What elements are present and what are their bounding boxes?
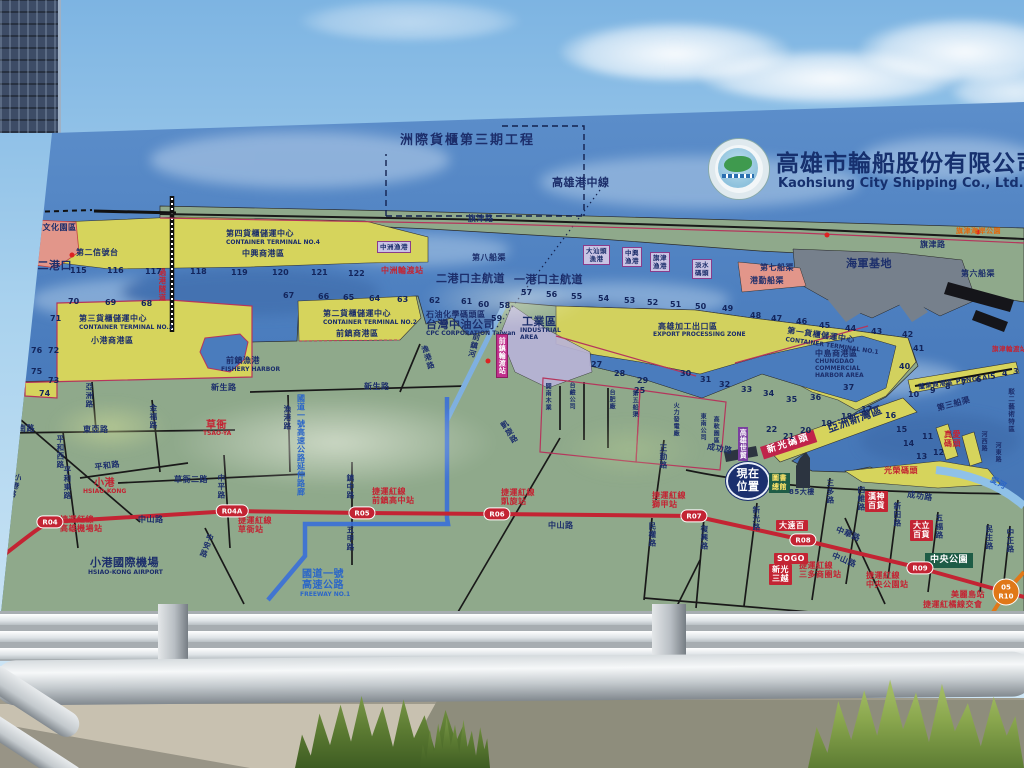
map-label: 淡水 碼頭: [692, 259, 712, 279]
map-label: 高雄港中線: [552, 177, 610, 190]
map-label: 7: [961, 378, 967, 387]
map-label: 東南公司: [699, 413, 706, 441]
map-label: 捷運紅線 前鎮高中站: [372, 487, 415, 506]
station-R04A: R04A: [216, 504, 249, 517]
map-label: 台肥廠: [608, 389, 615, 410]
map-label: 亞洲新灣區: [826, 404, 884, 436]
map-label: 漁港路: [282, 405, 291, 431]
map-label: 前鎮漁港: [226, 356, 260, 365]
map-label: 44: [845, 324, 856, 333]
map-label: 32: [719, 380, 730, 389]
map-label: 三多路: [825, 479, 834, 505]
map-label: 海軍基地: [846, 258, 892, 271]
map-label: 高軟園區: [712, 416, 719, 444]
map-label: 民權路: [647, 522, 656, 548]
map-label: 第七船渠: [760, 263, 794, 272]
map-label: 74: [39, 389, 50, 398]
map-label: 漁港路: [419, 344, 435, 371]
map-label: 118: [190, 267, 207, 276]
map-label: 河西路: [980, 431, 987, 452]
map-label: 東亞路: [83, 425, 109, 434]
map-label: 71: [50, 314, 61, 323]
map-label: 55: [571, 292, 582, 301]
map-label: 43: [871, 327, 882, 336]
map-label: 金福路: [148, 404, 157, 430]
map-label: 67: [283, 291, 294, 300]
map-label: 13: [916, 452, 927, 461]
map-label: 第六船渠: [961, 269, 995, 278]
map-label: 68: [141, 299, 152, 308]
station-R05: R05: [348, 506, 375, 519]
map-label: 第三貨櫃儲運中心: [79, 314, 147, 323]
map-label: 港勤船渠: [750, 276, 784, 285]
map-label: 60: [478, 300, 489, 309]
map-label: 61: [461, 297, 472, 306]
station-R04: R04: [36, 515, 63, 528]
map-label: 58: [499, 301, 510, 310]
map-label: 中洲漁港: [377, 241, 411, 253]
map-label: 小港商港區: [91, 336, 134, 345]
map-label: 捷運紅線 中央公園站: [866, 571, 909, 590]
map-label: 62: [429, 296, 440, 305]
map-label: 漢神 百貨: [865, 491, 888, 512]
map-label: 45: [819, 321, 830, 330]
map-label: 中平路: [216, 474, 225, 500]
you-are-here-marker: 現在 位置: [726, 462, 770, 500]
map-label: 21: [783, 432, 794, 441]
map-label: 平和路: [94, 459, 121, 472]
station-R08: R08: [789, 533, 816, 546]
map-label: SOGO: [774, 553, 808, 564]
map-label: 成功路: [706, 442, 733, 456]
map-label: 50: [695, 302, 706, 311]
map-label: 新生路: [364, 382, 390, 391]
map-label: 開南木業: [544, 383, 551, 411]
map-label: 36: [810, 393, 821, 402]
map-label: 8: [945, 382, 951, 391]
map-label: 中洲輪渡站: [381, 266, 424, 275]
map-label: 二港口主航道: [436, 273, 505, 286]
map-label: 66: [318, 292, 329, 301]
map-label: 49: [722, 304, 733, 313]
map-label: 河東路: [994, 442, 1001, 463]
map-label: 第八船渠: [472, 253, 506, 262]
map-label: 14: [903, 439, 914, 448]
map-label: 11: [922, 432, 933, 441]
map-label: 美麗島站: [951, 590, 985, 599]
map-label: CONTAINER TERMINAL NO.2: [323, 319, 417, 326]
map-label: 12: [933, 448, 944, 457]
map-label: 6: [976, 375, 982, 384]
map-label: 63: [397, 295, 408, 304]
map-label: 5: [990, 372, 996, 381]
map-label: 72: [48, 346, 59, 355]
map-label: 五福路: [934, 514, 943, 540]
station-R09: R09: [906, 561, 933, 574]
map-label: 國道一號高速公路延伸路廊: [296, 394, 305, 496]
guardrail-tube: [0, 651, 1024, 705]
map-label: 火力發電廠: [672, 402, 679, 437]
map-label: 捷運紅線 獅甲站: [652, 491, 686, 510]
map-label: 18: [841, 412, 852, 421]
map-label: 42: [902, 330, 913, 339]
map-label: 捷運紅線 凱旋站: [501, 488, 535, 507]
map-label: CONTAINER TERMINAL NO.4: [226, 239, 320, 246]
map-label: 凱旋路: [498, 419, 519, 445]
map-label: 119: [231, 268, 248, 277]
map-label: 56: [546, 290, 557, 299]
map-label: 第二貨櫃儲運中心: [323, 309, 391, 318]
map-label: 27: [591, 360, 602, 369]
map-label: 捷運紅橘線交會: [923, 600, 983, 609]
map-label: 平和西路: [55, 435, 64, 469]
map-label: 五甲路: [345, 526, 354, 552]
map-label: 20: [800, 426, 811, 435]
map-label: 22: [766, 425, 777, 434]
map-label: 115: [70, 266, 87, 275]
map-label: 中華路: [834, 525, 861, 543]
map-label: 圖書 總館: [769, 473, 790, 493]
map-label: 草衙二路: [174, 475, 208, 484]
map-label: 15: [896, 425, 907, 434]
map-label: 新田路: [892, 502, 901, 528]
map-label: 真愛 碼頭: [944, 430, 961, 449]
map-label: TSAO-YA: [203, 430, 231, 437]
map-label: 41: [913, 344, 924, 353]
map-label: 57: [521, 288, 532, 297]
station-R10-O5-transfer: 05 R10: [993, 579, 1020, 606]
map-label: AREA: [520, 334, 538, 341]
map-label: 40: [899, 362, 910, 371]
station-R06: R06: [483, 507, 510, 520]
map-label: 中興 漁港: [622, 247, 642, 267]
map-label: 成功路: [907, 490, 934, 503]
map-label: 中正路: [1005, 528, 1014, 554]
map-label: 116: [107, 266, 124, 275]
map-label: 第四貨櫃儲運中心: [226, 229, 294, 238]
map-label: 51: [670, 300, 681, 309]
map-label: 中山路: [548, 521, 574, 530]
map-label: 復興路: [699, 525, 708, 551]
map-label: CONTAINER TERMINAL NO.3: [79, 324, 173, 331]
map-label: 捷運紅線 高雄機場站: [60, 515, 103, 534]
map-label: 117: [145, 267, 162, 276]
cloud: [300, 0, 520, 40]
map-label: 30: [680, 369, 691, 378]
map-label: 前鎮輪渡站: [496, 334, 508, 378]
map-label: 33: [741, 385, 752, 394]
map-label: HSIAO-KONG AIRPORT: [88, 569, 163, 576]
map-label: 大遠百: [776, 520, 808, 531]
map-label: 17: [861, 405, 872, 414]
map-label: 54: [598, 294, 609, 303]
map-label: 53: [624, 296, 635, 305]
map-label: 47: [771, 314, 782, 323]
map-label: 愛河: [989, 475, 1008, 491]
map-label: FREEWAY NO.1: [300, 591, 350, 598]
map-label: 新光 三越: [769, 564, 792, 585]
map-label: 122: [348, 269, 365, 278]
map-label: 29: [637, 376, 648, 385]
map-label: 大立 百貨: [910, 520, 933, 541]
map-label: 59: [491, 314, 502, 323]
map-label: 第三船渠: [936, 395, 971, 413]
map-label: 37: [843, 383, 854, 392]
map-label: 73: [48, 376, 59, 385]
map-label: 光榮碼頭: [884, 466, 918, 475]
map-label: HARBOR AREA: [815, 372, 864, 379]
map-label: 76: [31, 346, 42, 355]
map-label: 16: [885, 411, 896, 420]
map-label: 中安路: [197, 532, 214, 559]
map-label: 高雄世貿: [738, 427, 748, 461]
map-label: 69: [105, 298, 116, 307]
map-label: 旗津海岸公園: [956, 227, 1001, 235]
map-label: 前鎮商港區: [336, 329, 379, 338]
map-label: 旗津路: [920, 240, 946, 249]
map-label: 大汕頭 漁港: [583, 245, 610, 265]
map-label: 新光路: [751, 506, 760, 532]
map-label: 民生路: [984, 525, 993, 551]
map-label: HSIAO-KONG: [83, 488, 126, 495]
office-building: [0, 0, 61, 133]
map-label: 旗津路: [468, 214, 494, 223]
map-label: 平和東路: [62, 466, 71, 500]
map-label: 正勤路: [658, 444, 667, 470]
map-label: 19: [821, 419, 832, 428]
map-label: 旗津輪渡站: [992, 346, 1024, 354]
map-label: FISHERY HARBOR: [221, 366, 280, 373]
map-label: 9: [930, 386, 936, 395]
photo-of-harbor-map-billboard: { "board": { "title_zh": "高雄市輪船股份有限公司", …: [0, 0, 1024, 768]
map-label: 34: [763, 389, 774, 398]
map-label: 25: [634, 386, 645, 395]
map-label: 一港口主航道: [514, 274, 583, 287]
map-label: 121: [311, 268, 328, 277]
map-label: 中興商港區: [242, 249, 285, 258]
map-label: 48: [750, 311, 761, 320]
map-label: 四維路: [856, 486, 865, 512]
map-label: 64: [369, 294, 380, 303]
map-label: EXPORT PROCESSING ZONE: [653, 331, 746, 338]
map-label: 洲際貨櫃第三期工程: [400, 133, 535, 148]
map-label: 52: [647, 298, 658, 307]
map-label: 捷運紅線 草衙站: [238, 516, 272, 535]
map-label: 35: [786, 395, 797, 404]
map-label: 120: [272, 268, 289, 277]
map-label: 28: [614, 369, 625, 378]
map-label: 4: [1002, 369, 1008, 378]
map-label: 亞洲路: [84, 383, 93, 409]
map-label: 31: [700, 375, 711, 384]
map-label: 台鹼公司: [568, 382, 575, 410]
map-label: 46: [796, 317, 807, 326]
map-label: 鎮中路: [345, 474, 354, 500]
station-R07: R07: [680, 509, 707, 522]
map-label: 10: [908, 390, 919, 399]
map-label: 85大樓: [789, 488, 815, 496]
map-label: 3: [1013, 367, 1019, 376]
map-label: 旗津 漁港: [650, 252, 670, 272]
map-label: 新生路: [211, 383, 237, 392]
map-label: 75: [31, 367, 42, 376]
map-label: 中山路: [138, 515, 164, 524]
map-label: 第二信號台: [76, 248, 119, 257]
map-label: 65: [343, 293, 354, 302]
map-label: 70: [68, 297, 79, 306]
map-label: 駁二藝術特區: [1006, 388, 1014, 433]
